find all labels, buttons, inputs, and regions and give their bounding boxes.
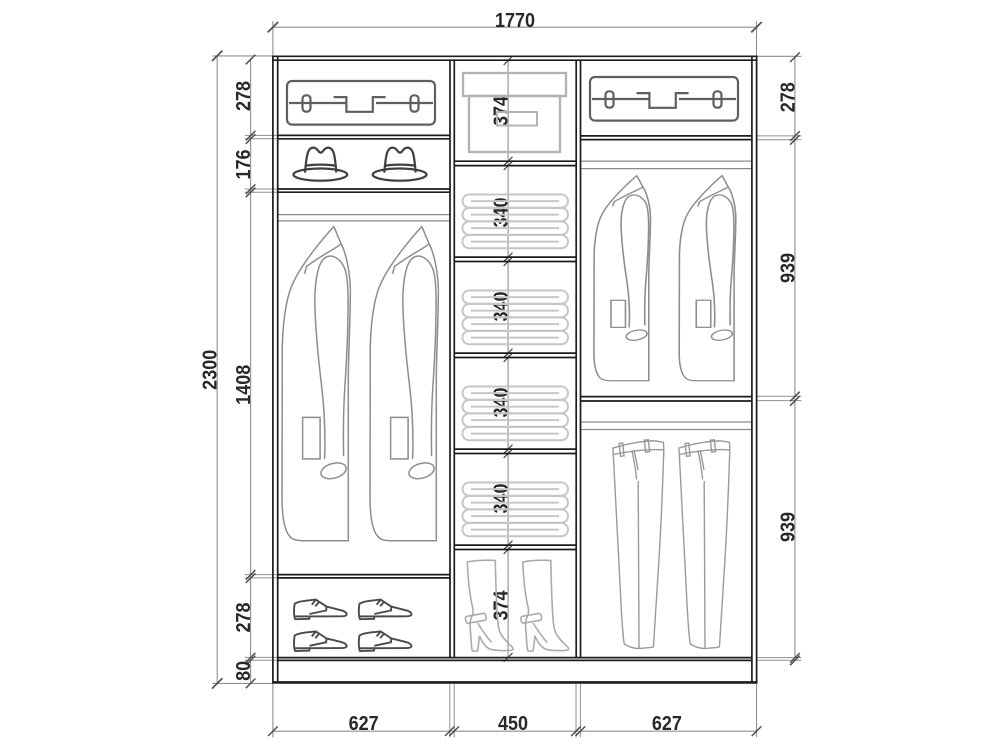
svg-text:176: 176 <box>233 149 255 179</box>
svg-text:627: 627 <box>652 713 682 735</box>
svg-text:278: 278 <box>778 82 800 112</box>
svg-text:2300: 2300 <box>200 350 222 390</box>
svg-text:1770: 1770 <box>495 10 535 32</box>
svg-text:627: 627 <box>349 713 379 735</box>
svg-text:278: 278 <box>233 602 255 632</box>
svg-text:374: 374 <box>491 96 513 126</box>
svg-text:939: 939 <box>778 253 800 283</box>
svg-text:1408: 1408 <box>233 365 255 405</box>
svg-text:450: 450 <box>498 713 528 735</box>
svg-text:939: 939 <box>778 512 800 542</box>
svg-text:374: 374 <box>491 590 513 620</box>
svg-text:80: 80 <box>233 661 255 681</box>
svg-text:278: 278 <box>233 81 255 111</box>
